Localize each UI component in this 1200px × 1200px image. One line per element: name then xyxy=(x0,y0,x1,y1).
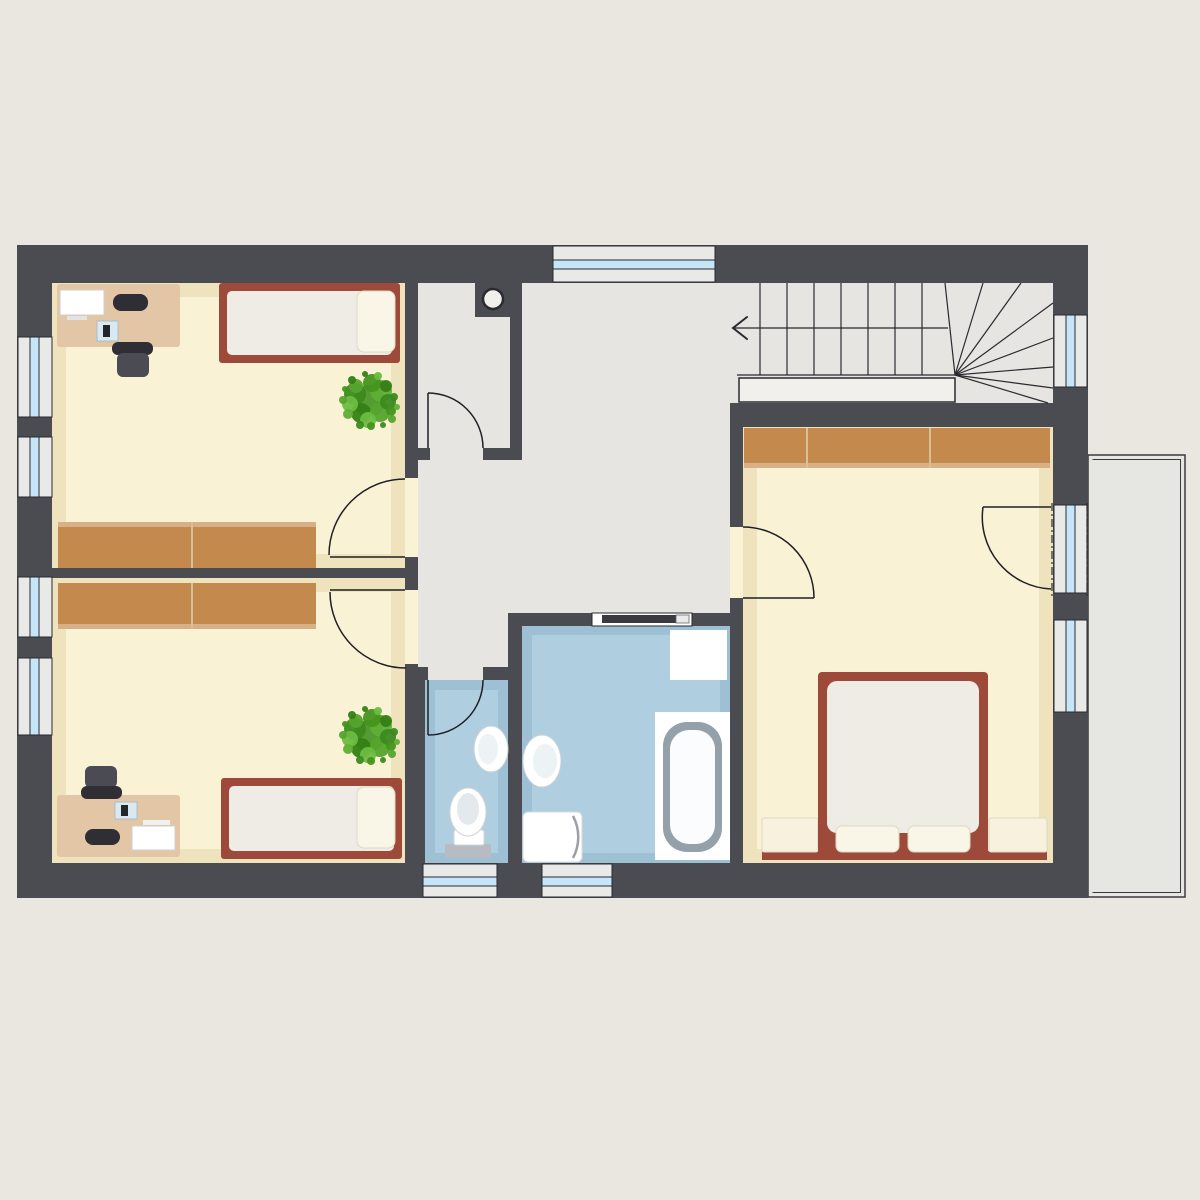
bed-right-pillow-right xyxy=(908,826,970,852)
plant-bedroom-bottom-left-leaf-18 xyxy=(348,711,356,719)
window-bottom-bathroom-glass xyxy=(542,877,612,886)
wardrobe-bottom-left-divider xyxy=(191,583,193,629)
floor-plan xyxy=(0,0,1200,1200)
door-sill-bedroom-right xyxy=(730,527,743,598)
plant-bedroom-bottom-left-leaf-14 xyxy=(339,731,347,739)
plant-bedroom-bottom-left-leaf-19 xyxy=(388,750,396,758)
balcony xyxy=(1088,455,1185,897)
chair-bottom-left-seat xyxy=(85,766,117,788)
bed-bottom-left-pillow xyxy=(357,787,395,848)
door-sill-bedroom-top-left xyxy=(405,478,418,557)
wall-closet-bottom-left xyxy=(405,448,430,460)
plant-bedroom-top-left-leaf-18 xyxy=(348,376,356,384)
floor-plan-canvas xyxy=(0,0,1200,1200)
stair-railing xyxy=(739,378,955,402)
plant-bedroom-bottom-left-leaf-21 xyxy=(394,739,400,745)
bed-right-mattress xyxy=(827,681,979,833)
wardrobe-top-left-divider xyxy=(191,522,193,568)
wall-wc-left xyxy=(405,680,425,863)
nightstand-left xyxy=(762,818,818,852)
plant-bedroom-top-left-leaf-20 xyxy=(342,386,348,392)
desk-bottom-left-phone-screen xyxy=(121,805,128,816)
corridor-floor xyxy=(418,448,522,680)
window-left-3-glass xyxy=(30,577,39,637)
bed-right-pillow-left xyxy=(836,826,899,852)
bathroom-cabinet xyxy=(670,630,727,680)
chimney-flue xyxy=(483,289,503,309)
wall-stairwell-bottom xyxy=(743,403,1053,427)
wall-bathroom-top-right xyxy=(688,613,731,626)
nightstand-right xyxy=(989,818,1047,852)
window-top-glass xyxy=(553,260,715,269)
door-sill-bedroom-bottom-left xyxy=(405,590,418,664)
toilet-bowl-inner xyxy=(457,793,479,825)
window-left-1-glass xyxy=(30,337,39,417)
wardrobe-right-highlight xyxy=(744,463,1050,468)
plant-bedroom-top-left-leaf-10 xyxy=(380,380,392,392)
chair-top-left-seat xyxy=(117,353,149,377)
plant-bedroom-top-left-leaf-16 xyxy=(356,421,364,429)
wardrobe-top-left xyxy=(58,522,316,568)
plant-bedroom-bottom-left-leaf-22 xyxy=(362,706,368,712)
sliding-door-panel xyxy=(602,615,676,623)
plant-bedroom-top-left-leaf-17 xyxy=(374,372,382,380)
wall-bathroom-top-left xyxy=(522,613,593,626)
wardrobe-bottom-left xyxy=(58,583,316,629)
toilet-base xyxy=(445,844,491,858)
wall-bedroom-right-upper xyxy=(730,403,743,527)
wall-wc-top-left xyxy=(411,667,428,680)
plant-bedroom-top-left-leaf-15 xyxy=(367,422,375,430)
desk-bottom-left-monitor xyxy=(132,826,175,850)
plant-bedroom-bottom-left-leaf-23 xyxy=(380,757,386,763)
plant-bedroom-bottom-left-leaf-15 xyxy=(367,757,375,765)
desk-bottom-left-paper xyxy=(143,820,170,825)
wall-wc-bathroom xyxy=(508,613,522,863)
wardrobe-bottom-left-highlight xyxy=(58,624,316,629)
plant-bedroom-top-left-leaf-23 xyxy=(380,422,386,428)
desk-top-left-keyboard xyxy=(113,294,148,311)
wall-closet-right xyxy=(510,283,522,460)
desk-top-left-monitor xyxy=(60,290,104,315)
wardrobe-right-divider-2 xyxy=(929,428,931,468)
bed-top-left-pillow xyxy=(357,291,395,352)
wardrobe-top-left-highlight xyxy=(58,522,316,527)
window-right-lower-glass xyxy=(1066,620,1075,712)
plant-bedroom-bottom-left-leaf-12 xyxy=(343,744,353,754)
bathroom-sink-basin xyxy=(533,744,557,778)
desk-top-left-phone-screen xyxy=(103,325,110,337)
plant-bedroom-top-left-leaf-19 xyxy=(388,415,396,423)
chair-bottom-left-back xyxy=(81,786,122,799)
plant-bedroom-bottom-left-leaf-10 xyxy=(380,715,392,727)
washing-machine xyxy=(523,812,582,862)
window-left-4-glass xyxy=(30,658,39,735)
window-stairwell-glass xyxy=(1066,315,1075,387)
sliding-door-handle xyxy=(676,615,689,623)
balcony-door-window-glass xyxy=(1066,505,1075,593)
wardrobe-right xyxy=(744,428,1050,468)
plant-bedroom-bottom-left-leaf-13 xyxy=(390,728,398,736)
plant-bedroom-top-left-leaf-14 xyxy=(339,396,347,404)
plant-bedroom-top-left-leaf-13 xyxy=(390,393,398,401)
desk-bottom-left-keyboard xyxy=(85,829,120,845)
wall-bedroom-divider xyxy=(40,568,417,578)
window-bottom-wc-glass xyxy=(423,877,497,886)
wardrobe-right-divider-1 xyxy=(806,428,808,468)
wall-divider-cap xyxy=(405,557,418,590)
plant-bedroom-bottom-left-leaf-17 xyxy=(374,707,382,715)
bathtub-inner xyxy=(670,730,715,844)
desk-top-left-tray xyxy=(67,316,87,320)
plant-bedroom-top-left-leaf-21 xyxy=(394,404,400,410)
wall-bedroom-right-lower xyxy=(730,598,743,863)
wall-closet-bottom-right xyxy=(483,448,522,460)
plant-bedroom-top-left-leaf-22 xyxy=(362,371,368,377)
plant-bedroom-bottom-left-leaf-16 xyxy=(356,756,364,764)
wall-hall-bedroom-upper xyxy=(405,460,418,476)
window-left-2-glass xyxy=(30,437,39,497)
wc-sink-basin xyxy=(478,734,498,764)
plant-bedroom-bottom-left-leaf-20 xyxy=(342,721,348,727)
wall-closet-left xyxy=(405,283,418,460)
plant-bedroom-top-left-leaf-12 xyxy=(343,409,353,419)
